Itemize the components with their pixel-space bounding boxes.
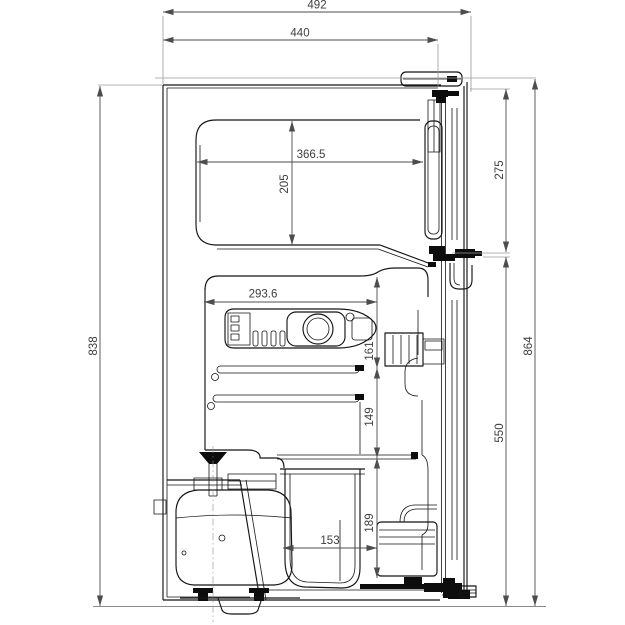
evaporator-plate bbox=[425, 121, 442, 239]
dimension-total-depth: 492 bbox=[163, 0, 471, 12]
dimension-freezer-door-height: 275 bbox=[494, 89, 506, 252]
dim-label-lower-section-height: 189 bbox=[364, 513, 376, 532]
hinge-middle bbox=[428, 246, 482, 289]
dimension-total-height: 864 bbox=[523, 79, 535, 606]
crisper-drawer bbox=[280, 469, 365, 588]
dimension-freezer-interior-depth: 366.5 bbox=[197, 149, 423, 162]
dimension-cabinet-depth: 440 bbox=[163, 28, 438, 41]
dim-label-total-depth: 492 bbox=[307, 0, 326, 12]
dimension-freezer-interior-height: 205 bbox=[279, 121, 292, 245]
dimension-crisper-depth: 153 bbox=[283, 535, 377, 548]
dim-label-middle-section-height: 149 bbox=[364, 407, 376, 426]
dimension-fridge-interior-depth: 293.6 bbox=[204, 289, 377, 303]
wire-shelf-lower bbox=[208, 394, 365, 454]
dim-label-fridge-door-height: 550 bbox=[494, 423, 506, 442]
dim-label-total-height: 864 bbox=[523, 336, 535, 356]
thermostat-lamp-housing bbox=[225, 309, 376, 348]
dimension-upper-section-height: 161 bbox=[364, 277, 377, 368]
dim-label-cabinet-depth: 440 bbox=[290, 28, 309, 40]
door-bin-middle bbox=[385, 333, 444, 366]
technical-drawing-refrigerator-section: 492 440 838 864 275 550 366.5 205 293.6 … bbox=[0, 0, 625, 625]
dim-label-freezer-door-height: 275 bbox=[494, 160, 506, 179]
dim-label-upper-section-height: 161 bbox=[364, 341, 376, 360]
dimension-cabinet-height: 838 bbox=[88, 86, 100, 606]
wire-shelf-upper bbox=[212, 365, 365, 381]
dim-label-freezer-interior-height: 205 bbox=[279, 174, 291, 193]
crisper-cover bbox=[277, 452, 418, 459]
dim-label-fridge-interior-depth: 293.6 bbox=[249, 289, 278, 301]
extension-lines bbox=[98, 16, 536, 257]
dimension-middle-section-height: 149 bbox=[364, 368, 377, 458]
dimension-fridge-door-height: 550 bbox=[494, 257, 506, 606]
dim-label-freezer-interior-depth: 366.5 bbox=[297, 149, 326, 161]
dim-label-cabinet-height: 838 bbox=[88, 336, 100, 355]
freezer-compartment bbox=[196, 120, 431, 267]
dimension-lower-section-height: 189 bbox=[364, 458, 377, 578]
dim-label-crisper-depth: 153 bbox=[320, 535, 339, 547]
drawing-canvas: 492 440 838 864 275 550 366.5 205 293.6 … bbox=[0, 0, 625, 625]
compressor bbox=[154, 474, 300, 614]
